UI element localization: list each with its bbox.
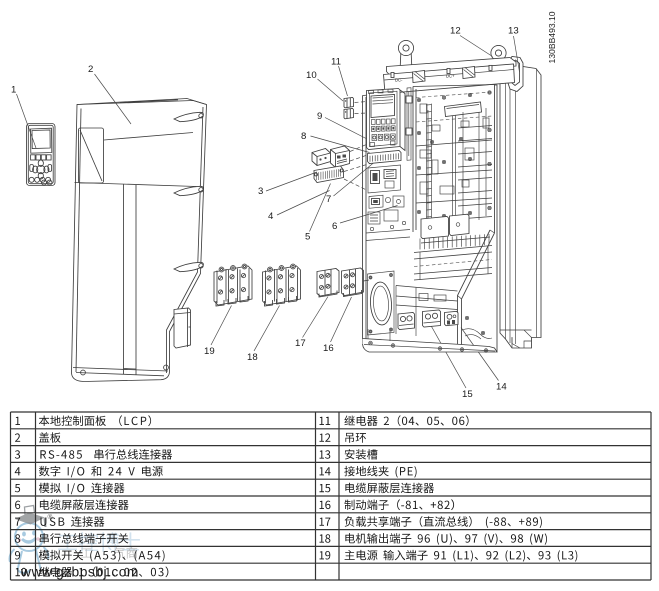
svg-text:11: 11 <box>331 57 341 68</box>
svg-text:DC+: DC+ <box>446 74 455 79</box>
svg-text:5: 5 <box>305 232 310 243</box>
svg-text:DC-: DC- <box>395 78 403 83</box>
svg-text:18: 18 <box>247 352 258 363</box>
svg-text:3: 3 <box>258 186 263 197</box>
svg-text:17: 17 <box>295 338 306 349</box>
svg-text:®: ® <box>48 513 53 521</box>
svg-text:8: 8 <box>301 131 306 142</box>
svg-text:10: 10 <box>306 70 317 81</box>
svg-text:15: 15 <box>462 389 473 400</box>
svg-text:13: 13 <box>508 26 519 37</box>
svg-text:19: 19 <box>204 346 215 357</box>
svg-text:9: 9 <box>317 111 322 122</box>
svg-text:7: 7 <box>326 194 331 205</box>
svg-text:6: 6 <box>332 221 337 232</box>
svg-text:2: 2 <box>88 64 93 75</box>
svg-text:1: 1 <box>11 85 16 96</box>
svg-text:4: 4 <box>268 211 274 222</box>
svg-text:12: 12 <box>450 26 461 37</box>
svg-text:16: 16 <box>323 343 334 354</box>
svg-text:www.gzbpsbj.com: www.gzbpsbj.com <box>20 565 139 580</box>
svg-text:14: 14 <box>496 382 507 393</box>
svg-text:130BB493.10: 130BB493.10 <box>547 11 557 63</box>
